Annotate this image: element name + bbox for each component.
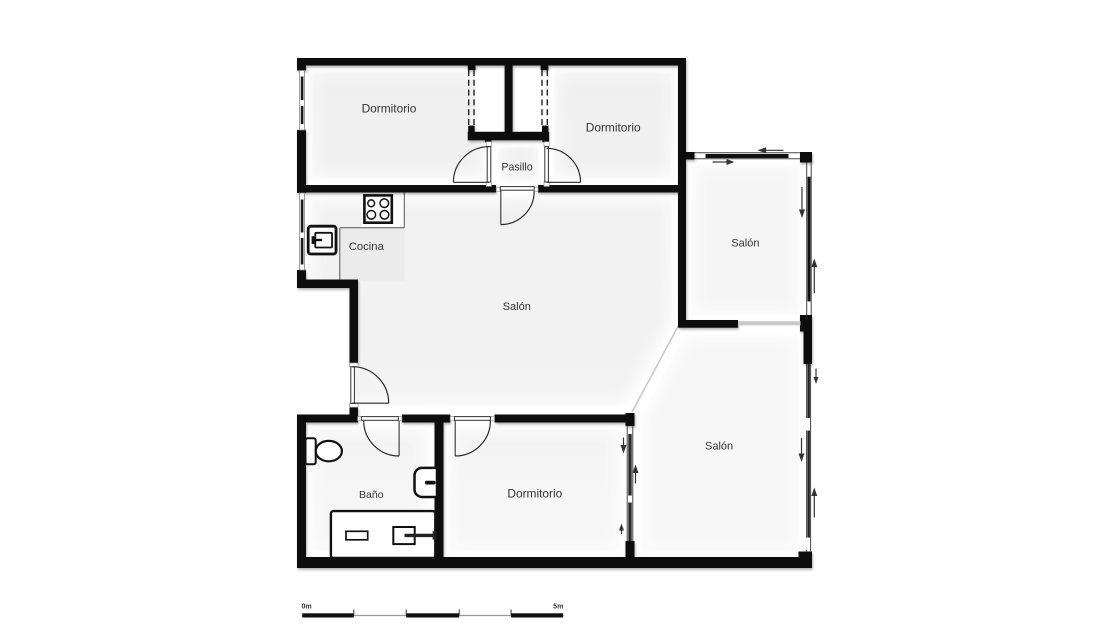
svg-text:0m: 0m xyxy=(302,604,312,611)
svg-text:Dormitorio: Dormitorio xyxy=(362,101,417,115)
svg-text:Salón: Salón xyxy=(503,301,531,313)
svg-text:Salón: Salón xyxy=(731,237,759,249)
svg-text:Cocina: Cocina xyxy=(349,241,385,253)
svg-text:Pasillo: Pasillo xyxy=(501,161,532,173)
svg-text:Dormitorio: Dormitorio xyxy=(586,121,641,135)
svg-text:Dormitorio: Dormitorio xyxy=(507,487,562,501)
svg-text:5m: 5m xyxy=(553,604,563,611)
svg-text:Baño: Baño xyxy=(359,489,384,501)
svg-text:Salón: Salón xyxy=(705,441,733,453)
